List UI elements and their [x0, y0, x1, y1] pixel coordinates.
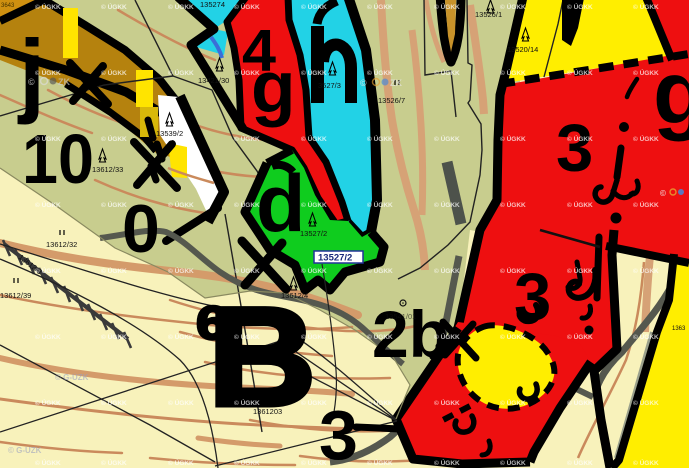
svg-text:© ÚGKK: © ÚGKK	[633, 200, 659, 209]
svg-text:© ÚGKK: © ÚGKK	[301, 266, 327, 275]
svg-text:© ÚGKK: © ÚGKK	[168, 68, 194, 77]
svg-text:g: g	[653, 43, 689, 142]
svg-text:© ÚGKK: © ÚGKK	[500, 332, 526, 341]
svg-text:10: 10	[22, 120, 94, 198]
svg-text:© ÚGKK: © ÚGKK	[567, 2, 593, 11]
svg-text:© ÚGKK: © ÚGKK	[500, 68, 526, 77]
svg-text:© ÚGKK: © ÚGKK	[168, 200, 194, 209]
svg-text:© ÚGKK: © ÚGKK	[35, 458, 61, 467]
svg-text:© ÚGKK: © ÚGKK	[567, 68, 593, 77]
svg-text:© ÚGKK: © ÚGKK	[633, 458, 659, 467]
svg-text:© ÚGKK: © ÚGKK	[234, 2, 260, 11]
svg-text:© ÚGKK: © ÚGKK	[367, 332, 393, 341]
svg-text:© ÚGKK: © ÚGKK	[301, 134, 327, 143]
svg-text:© ÚGKK: © ÚGKK	[434, 134, 460, 143]
svg-text:d: d	[256, 159, 305, 249]
svg-text:13527/2: 13527/2	[318, 253, 352, 264]
svg-text:© ÚGKK: © ÚGKK	[168, 2, 194, 11]
svg-text:© ÚGKK: © ÚGKK	[500, 458, 526, 467]
svg-text:© ÚGKK: © ÚGKK	[500, 200, 526, 209]
svg-text:© ÚGKK: © ÚGKK	[101, 68, 127, 77]
svg-text:3527/3: 3527/3	[318, 81, 341, 90]
svg-text:© ÚGKK: © ÚGKK	[234, 200, 260, 209]
svg-text:13421/30: 13421/30	[198, 76, 229, 85]
svg-text:13526/7: 13526/7	[378, 96, 405, 105]
svg-text:© ÚGKK: © ÚGKK	[168, 332, 194, 341]
svg-text:13612/39: 13612/39	[0, 291, 31, 300]
svg-text:© ÚGKK: © ÚGKK	[567, 332, 593, 341]
svg-text:© ÚGKK: © ÚGKK	[633, 2, 659, 11]
svg-text:© ÚGKK: © ÚGKK	[367, 134, 393, 143]
svg-text:© ÚGKK: © ÚGKK	[567, 398, 593, 407]
svg-text:© ÚGKK: © ÚGKK	[567, 200, 593, 209]
svg-text:0: 0	[122, 191, 160, 267]
svg-text:© ÚGKK: © ÚGKK	[367, 2, 393, 11]
svg-text:© ÚGKK: © ÚGKK	[301, 332, 327, 341]
svg-text:13526/1: 13526/1	[475, 10, 502, 19]
svg-text:© ÚGKK: © ÚGKK	[367, 266, 393, 275]
svg-text:© ÚGKK: © ÚGKK	[35, 134, 61, 143]
svg-text:© ÚGKK: © ÚGKK	[500, 266, 526, 275]
svg-text:© ÚGKK: © ÚGKK	[101, 200, 127, 209]
svg-text:1363: 1363	[672, 326, 686, 332]
svg-text:© ÚGKK: © ÚGKK	[234, 266, 260, 275]
svg-text:© ÚGKK: © ÚGKK	[168, 134, 194, 143]
svg-text:© ÚGKK: © ÚGKK	[367, 458, 393, 467]
svg-text:© G-ÚZK: © G-ÚZK	[55, 373, 89, 382]
svg-text:13612/32: 13612/32	[46, 240, 77, 249]
svg-text:© ÚGKK: © ÚGKK	[434, 458, 460, 467]
svg-text:© ÚGKK: © ÚGKK	[500, 2, 526, 11]
svg-text:© ÚGKK: © ÚGKK	[301, 2, 327, 11]
svg-text:© ÚGKK: © ÚGKK	[101, 398, 127, 407]
svg-text:© ÚGKK: © ÚGKK	[633, 332, 659, 341]
svg-text:© ÚGKK: © ÚGKK	[367, 200, 393, 209]
svg-text:3: 3	[556, 111, 593, 186]
svg-text:© ÚGKK: © ÚGKK	[234, 398, 260, 407]
svg-text:© ÚGKK: © ÚGKK	[434, 2, 460, 11]
svg-text:© ÚGKK: © ÚGKK	[168, 398, 194, 407]
svg-text:© ÚGKK: © ÚGKK	[500, 134, 526, 143]
svg-text:13612/33: 13612/33	[92, 165, 123, 174]
svg-text:© ÚGKK: © ÚGKK	[35, 2, 61, 11]
svg-text:© ÚGKK: © ÚGKK	[234, 68, 260, 77]
svg-text:© ÚGKK: © ÚGKK	[101, 266, 127, 275]
svg-text:1361203: 1361203	[253, 407, 282, 416]
svg-text:© ÚGKK: © ÚGKK	[367, 68, 393, 77]
svg-text:3643: 3643	[1, 3, 15, 9]
svg-text:© ÚGKK: © ÚGKK	[168, 458, 194, 467]
svg-text:© ÚGKK: © ÚGKK	[35, 68, 61, 77]
svg-text:13527/2: 13527/2	[300, 229, 327, 238]
svg-text:© ÚGKK: © ÚGKK	[234, 332, 260, 341]
svg-text:© ÚGKK: © ÚGKK	[367, 398, 393, 407]
svg-text:© ÚGKK: © ÚGKK	[301, 398, 327, 407]
svg-text:© ÚGKK: © ÚGKK	[101, 332, 127, 341]
svg-text:© ÚGKK: © ÚGKK	[434, 398, 460, 407]
svg-text:© ÚGKK: © ÚGKK	[633, 134, 659, 143]
svg-text:13541/01: 13541/01	[385, 312, 416, 321]
svg-text:ZK: ZK	[58, 77, 70, 87]
svg-text:© ÚGKK: © ÚGKK	[234, 134, 260, 143]
svg-text:135274: 135274	[200, 0, 225, 9]
svg-text:13520/14: 13520/14	[507, 45, 538, 54]
svg-text:© ÚGKK: © ÚGKK	[101, 2, 127, 11]
svg-text:©: ©	[360, 78, 367, 88]
svg-text:© ÚGKK: © ÚGKK	[301, 200, 327, 209]
svg-text:g: g	[251, 47, 296, 128]
svg-text:© ÚGKK: © ÚGKK	[633, 398, 659, 407]
svg-text:© ÚGKK: © ÚGKK	[35, 398, 61, 407]
svg-text:13612/4: 13612/4	[281, 291, 308, 300]
svg-text:© ÚGKK: © ÚGKK	[633, 68, 659, 77]
svg-text:© ÚGKK: © ÚGKK	[101, 134, 127, 143]
svg-text:© ÚGKK: © ÚGKK	[35, 266, 61, 275]
svg-text:© ÚGKK: © ÚGKK	[35, 332, 61, 341]
svg-text:© ÚGKK: © ÚGKK	[101, 458, 127, 467]
svg-text:© G-ÚZK: © G-ÚZK	[8, 446, 42, 455]
svg-text:© ÚGKK: © ÚGKK	[567, 458, 593, 467]
svg-text:© ÚGKK: © ÚGKK	[567, 134, 593, 143]
svg-text:© ÚGKK: © ÚGKK	[301, 458, 327, 467]
svg-text:© ÚGKK: © ÚGKK	[35, 200, 61, 209]
svg-text:© ÚGKK: © ÚGKK	[168, 266, 194, 275]
svg-text:©: ©	[28, 77, 35, 87]
svg-text:© ÚGKK: © ÚGKK	[567, 266, 593, 275]
svg-text:© ÚGKK: © ÚGKK	[434, 266, 460, 275]
svg-text:© ÚGKK: © ÚGKK	[301, 68, 327, 77]
svg-text:© ÚGKK: © ÚGKK	[234, 458, 260, 467]
svg-text:©: ©	[660, 189, 666, 198]
svg-text:© ÚGKK: © ÚGKK	[434, 200, 460, 209]
svg-text:© ÚGKK: © ÚGKK	[434, 332, 460, 341]
svg-text:ZK: ZK	[390, 78, 402, 88]
svg-text:© ÚGKK: © ÚGKK	[434, 68, 460, 77]
svg-text:© ÚGKK: © ÚGKK	[633, 266, 659, 275]
svg-text:© ÚGKK: © ÚGKK	[500, 398, 526, 407]
